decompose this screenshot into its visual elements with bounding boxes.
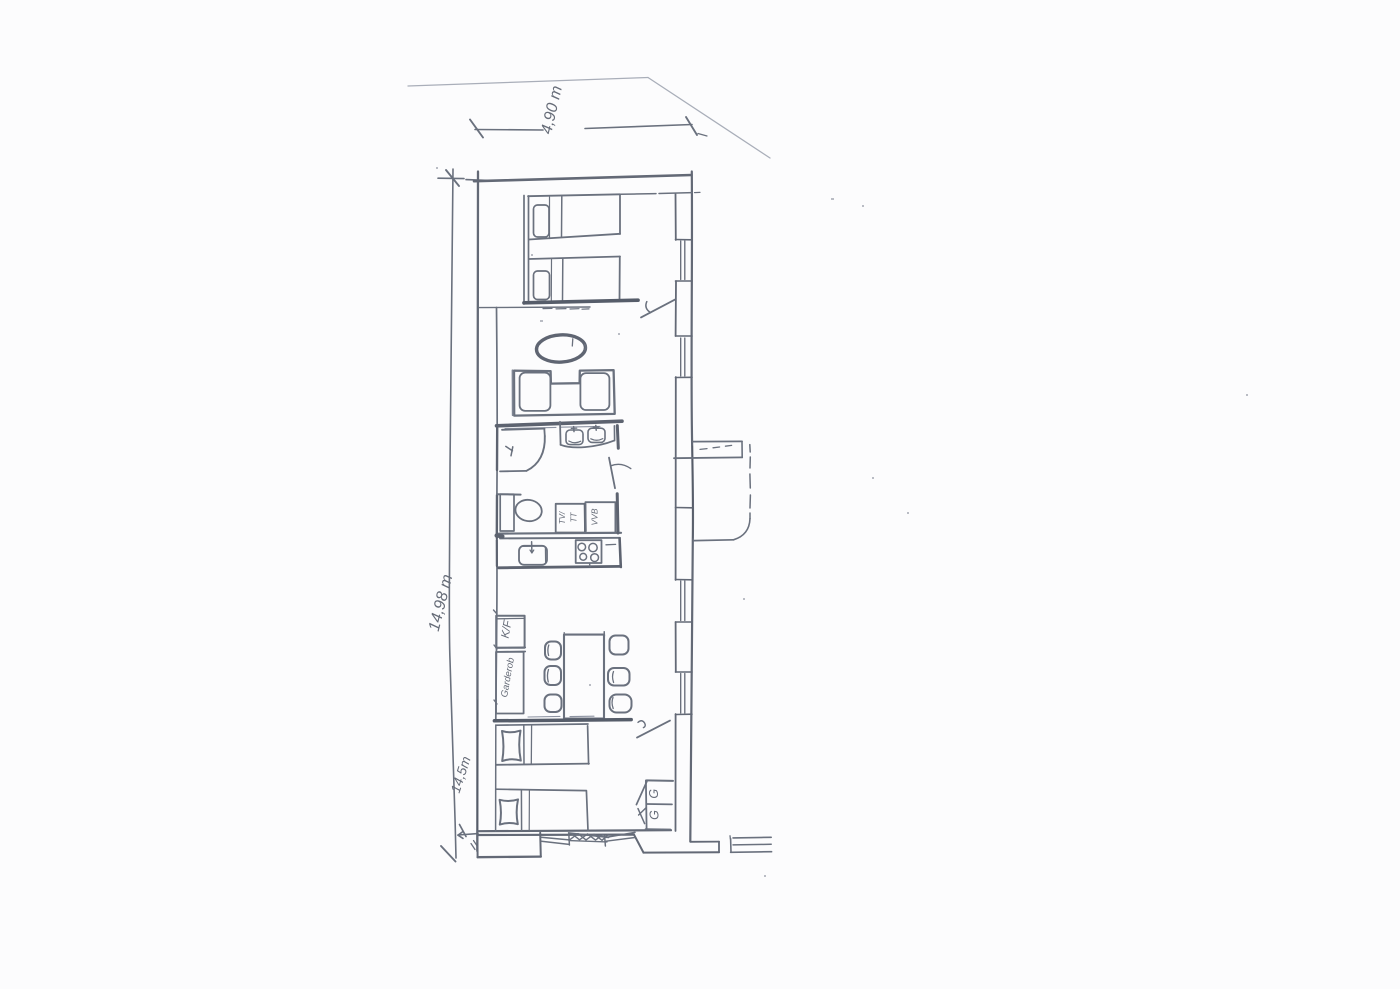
svg-text:TT: TT	[570, 512, 579, 523]
svg-text:G: G	[647, 789, 661, 799]
svg-text:G: G	[648, 810, 662, 820]
svg-text:VVB: VVB	[590, 508, 600, 525]
svg-text:TV/: TV/	[558, 511, 567, 524]
